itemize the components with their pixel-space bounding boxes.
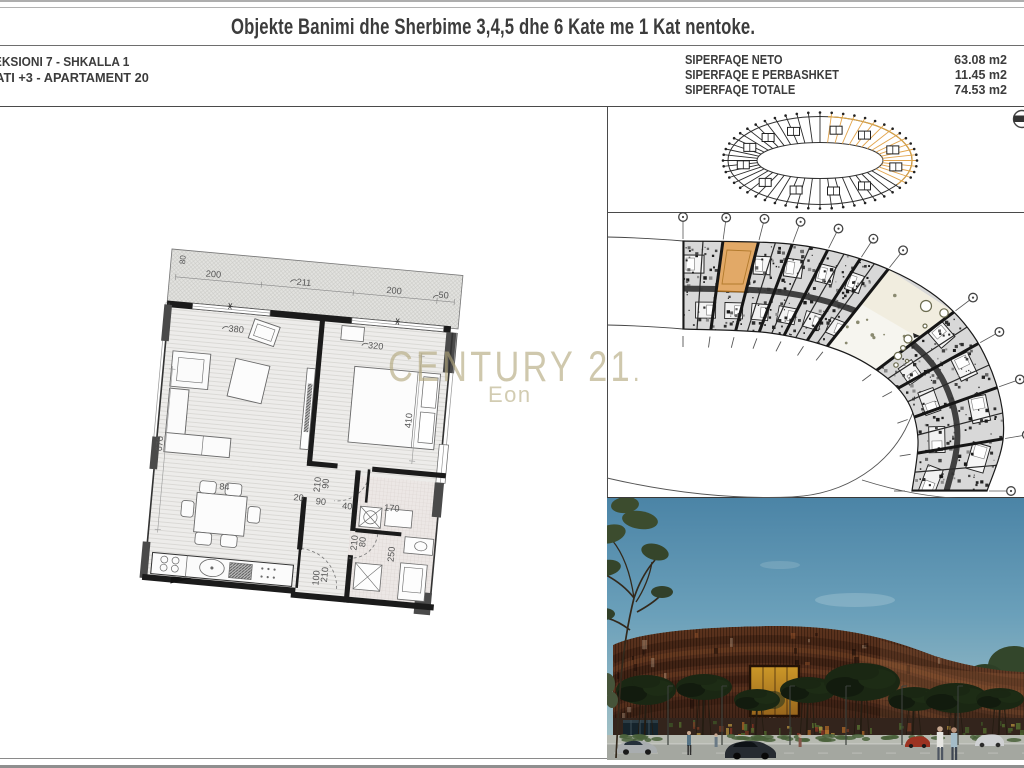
svg-text:20: 20	[293, 492, 304, 503]
svg-text:84: 84	[219, 481, 230, 492]
svg-text:90: 90	[320, 478, 331, 489]
svg-text:80: 80	[357, 537, 368, 548]
svg-text:50: 50	[438, 290, 449, 301]
svg-text:170: 170	[384, 502, 400, 513]
svg-text:40: 40	[342, 501, 353, 512]
svg-text:670: 670	[154, 436, 165, 452]
svg-text:320: 320	[368, 340, 384, 351]
svg-text:90: 90	[315, 496, 326, 507]
svg-text:211: 211	[296, 277, 312, 288]
svg-text:80: 80	[178, 254, 188, 264]
svg-text:210: 210	[319, 567, 330, 583]
svg-text:380: 380	[228, 324, 244, 335]
svg-text:250: 250	[386, 546, 397, 562]
svg-text:200: 200	[205, 269, 221, 280]
svg-text:410: 410	[403, 413, 414, 429]
svg-text:200: 200	[386, 285, 402, 296]
